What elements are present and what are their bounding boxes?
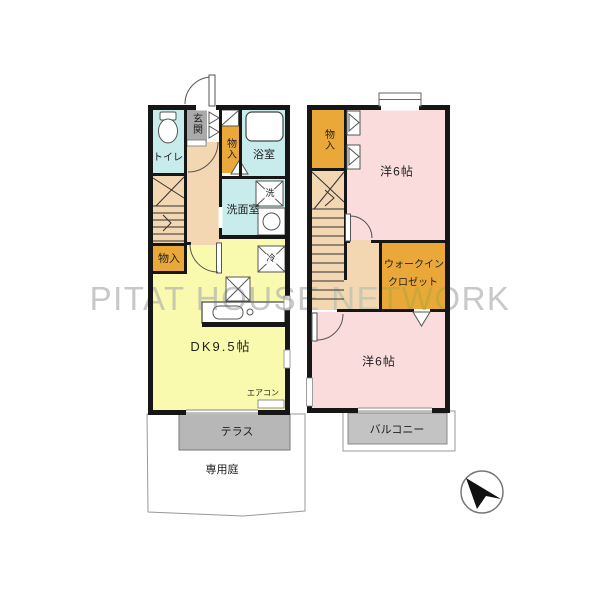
stove bbox=[226, 277, 250, 301]
floorplan-drawing bbox=[0, 0, 600, 600]
kitchen-counter bbox=[202, 302, 287, 327]
label-private-garden: 専用庭 bbox=[206, 464, 239, 476]
bedroom-lower-door-leaf bbox=[312, 313, 317, 341]
label-bedroom-lower: 洋6帖 bbox=[362, 355, 396, 368]
floorplan-canvas: トイレ 玄関 物入 浴室 洗 洗面室 物入 冷 DK9.5帖 エアコン テラス … bbox=[0, 0, 600, 600]
label-dk: DK9.5帖 bbox=[190, 340, 251, 354]
label-storage-upper: 物入 bbox=[225, 138, 236, 160]
floor1-plan bbox=[151, 75, 291, 415]
stairs1-floor bbox=[153, 176, 186, 245]
hall2-floor bbox=[344, 240, 382, 312]
label-storage-2f: 物入 bbox=[323, 129, 334, 151]
washbasin bbox=[258, 208, 285, 235]
dk-window-1 bbox=[284, 296, 290, 310]
label-bedroom-upper: 洋6帖 bbox=[380, 165, 414, 178]
label-toilet: トイレ bbox=[153, 153, 183, 164]
label-entrance: 玄関 bbox=[191, 113, 202, 135]
bathtub bbox=[246, 112, 283, 141]
north-arrow bbox=[461, 471, 503, 513]
label-aircon: エアコン bbox=[247, 390, 279, 399]
washroom-door-opening bbox=[219, 207, 223, 228]
bedroom-lower-side-window bbox=[307, 378, 313, 406]
label-terrace: テラス bbox=[221, 426, 254, 438]
dk-door-leaf bbox=[217, 243, 222, 273]
entrance-side-cabinet bbox=[222, 110, 239, 126]
label-bathroom: 浴室 bbox=[253, 149, 275, 161]
entrance-door-arc bbox=[185, 77, 212, 104]
toilet-fixture bbox=[159, 112, 178, 143]
label-balcony: バルコニー bbox=[370, 424, 425, 436]
label-refrigerator: 冷 bbox=[265, 254, 276, 264]
label-storage-lower: 物入 bbox=[158, 253, 180, 265]
aircon-unit bbox=[258, 400, 284, 408]
entrance-door-leaf bbox=[209, 75, 215, 106]
bedroom-upper-door-leaf bbox=[346, 214, 351, 241]
label-wic-line2: クロゼット bbox=[388, 278, 438, 289]
top-window bbox=[379, 93, 421, 111]
entrance-step bbox=[187, 140, 206, 146]
label-washroom: 洗面室 bbox=[227, 204, 260, 216]
terrace-sliding-door bbox=[186, 409, 258, 415]
dk-window-2 bbox=[284, 350, 290, 368]
label-wic-line1: ウォークイン bbox=[384, 260, 444, 271]
balcony-sliding-door bbox=[358, 407, 432, 413]
label-washing-machine: 洗 bbox=[264, 189, 275, 199]
walk-in-closet-room bbox=[382, 243, 445, 309]
